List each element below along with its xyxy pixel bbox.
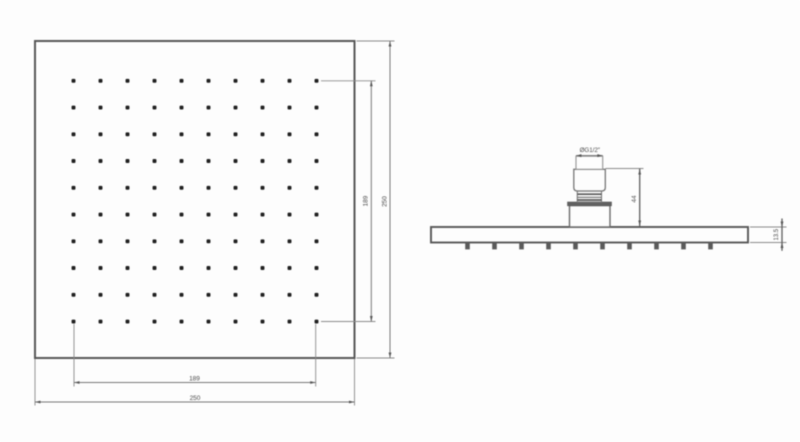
svg-text:189: 189 (189, 376, 200, 383)
svg-text:189: 189 (363, 195, 370, 206)
svg-text:13.5: 13.5 (774, 228, 780, 240)
svg-text:250: 250 (381, 196, 388, 207)
svg-text:44: 44 (631, 195, 638, 203)
svg-text:ØG1/2″: ØG1/2″ (580, 147, 601, 154)
svg-text:250: 250 (190, 395, 201, 402)
